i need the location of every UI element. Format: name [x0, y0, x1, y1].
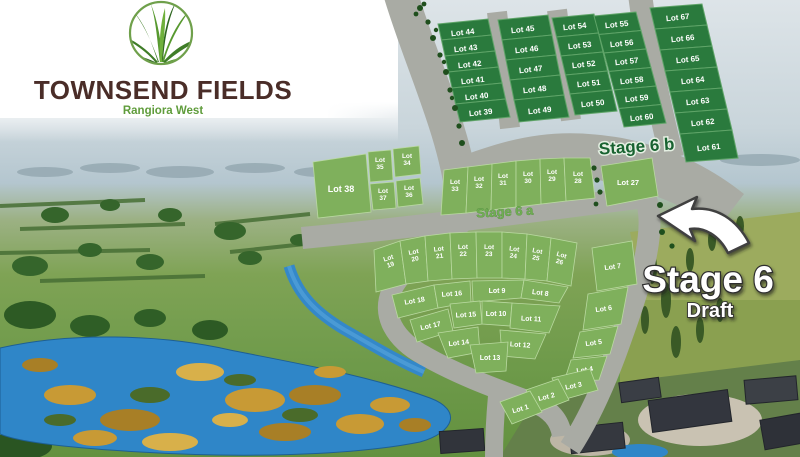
logo-backdrop [0, 0, 398, 142]
stage6-draft-label: Draft [687, 300, 734, 322]
lot-label: Lot 27 [617, 178, 639, 187]
lot-label: Lot 38 [328, 184, 355, 194]
lot-label: Lot 16 [441, 290, 462, 298]
lot-label: Lot 12 [510, 341, 531, 349]
lot-label: Lot 10 [486, 311, 507, 318]
site-plan-image: Lot 44Lot 43Lot 42Lot 41Lot 40Lot 39Lot … [0, 0, 800, 457]
stage6-headline: Stage 6 [642, 259, 774, 300]
brand-subtitle: Rangiora West [123, 105, 203, 117]
site-plan-svg: Lot 44Lot 43Lot 42Lot 41Lot 40Lot 39Lot … [0, 0, 800, 457]
stage-6a-label: Stage 6 a [476, 202, 535, 220]
brand-title: TOWNSEND FIELDS [34, 75, 292, 105]
road-south-exit [494, 396, 497, 457]
lot-label: Lot 15 [455, 311, 476, 319]
lot-label: Lot 9 [489, 288, 506, 295]
lot-label: Lot 11 [521, 315, 542, 323]
lot-label: Lot 13 [480, 355, 501, 362]
